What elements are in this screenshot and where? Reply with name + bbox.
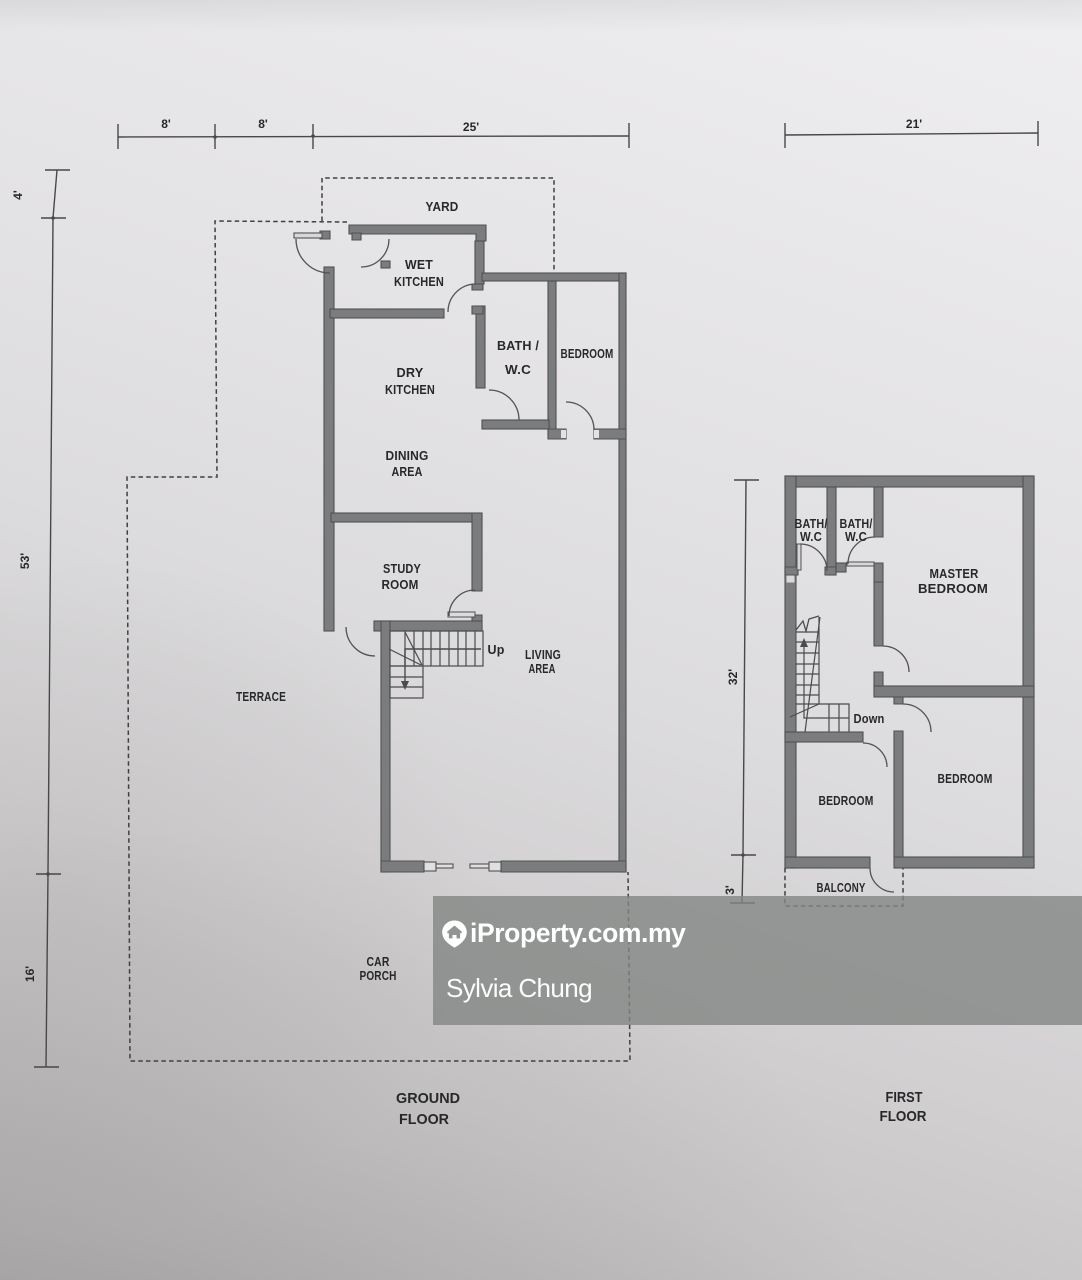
svg-text:PORCH: PORCH [360, 968, 397, 983]
svg-text:DINING: DINING [386, 448, 429, 463]
svg-text:KITCHEN: KITCHEN [394, 274, 444, 289]
svg-text:AREA: AREA [529, 661, 556, 676]
svg-text:LIVING: LIVING [525, 647, 561, 662]
svg-text:DRY: DRY [397, 365, 424, 380]
svg-text:CAR: CAR [367, 954, 390, 969]
svg-text:8': 8' [161, 117, 171, 131]
svg-text:FLOOR: FLOOR [399, 1111, 449, 1128]
svg-text:BEDROOM: BEDROOM [819, 793, 874, 808]
svg-text:BEDROOM: BEDROOM [561, 346, 614, 361]
svg-text:Up: Up [488, 642, 505, 657]
svg-text:TERRACE: TERRACE [236, 689, 286, 704]
svg-text:KITCHEN: KITCHEN [385, 382, 435, 397]
svg-text:W.C: W.C [845, 529, 867, 544]
svg-text:BEDROOM: BEDROOM [938, 771, 993, 786]
svg-text:WET: WET [405, 257, 433, 272]
svg-text:25': 25' [463, 120, 479, 134]
svg-text:BALCONY: BALCONY [817, 880, 866, 895]
svg-text:4': 4' [11, 190, 25, 200]
svg-text:3': 3' [723, 885, 737, 895]
svg-text:FLOOR: FLOOR [880, 1108, 927, 1125]
svg-text:STUDY: STUDY [383, 561, 421, 576]
svg-text:Down: Down [854, 711, 885, 726]
svg-text:YARD: YARD [426, 199, 459, 214]
svg-text:32': 32' [726, 669, 740, 685]
svg-text:FIRST: FIRST [886, 1089, 923, 1106]
svg-text:MASTER: MASTER [930, 566, 979, 581]
svg-text:8': 8' [258, 117, 268, 131]
svg-text:W.C: W.C [505, 362, 531, 377]
svg-text:GROUND: GROUND [396, 1090, 460, 1107]
svg-text:ROOM: ROOM [382, 577, 419, 592]
svg-text:21': 21' [906, 117, 922, 131]
svg-text:BATH /: BATH / [497, 338, 539, 353]
svg-text:53': 53' [18, 553, 32, 569]
svg-text:BEDROOM: BEDROOM [918, 581, 988, 596]
svg-text:Sylvia Chung: Sylvia Chung [446, 973, 592, 1003]
svg-text:AREA: AREA [392, 464, 423, 479]
svg-text:16': 16' [23, 966, 37, 982]
svg-text:W.C: W.C [800, 529, 822, 544]
svg-text:iProperty.com.my: iProperty.com.my [470, 918, 686, 948]
